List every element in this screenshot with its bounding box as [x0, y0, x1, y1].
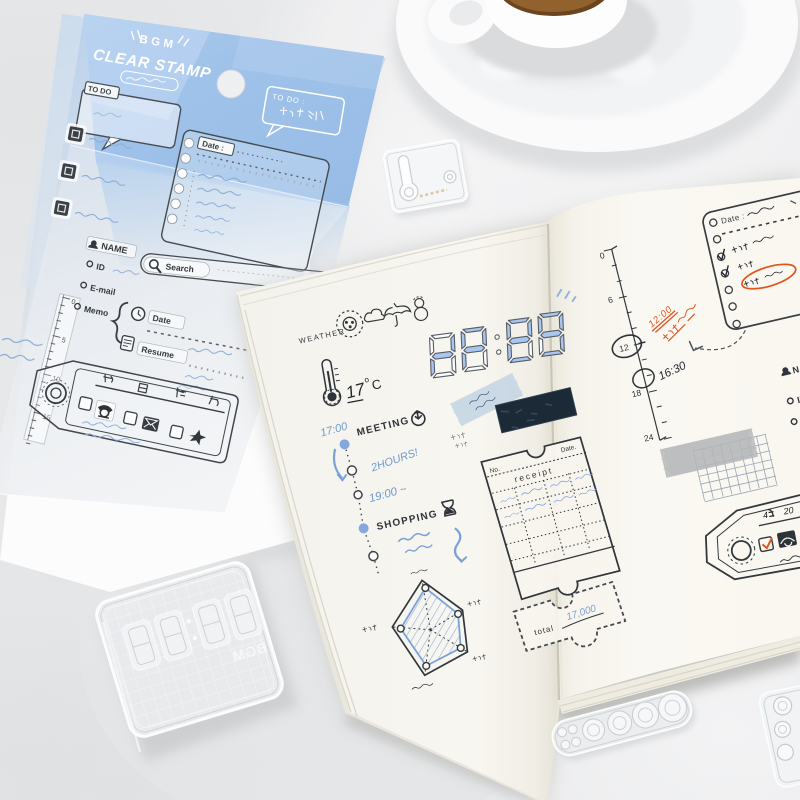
svg-text:20: 20	[782, 505, 795, 517]
